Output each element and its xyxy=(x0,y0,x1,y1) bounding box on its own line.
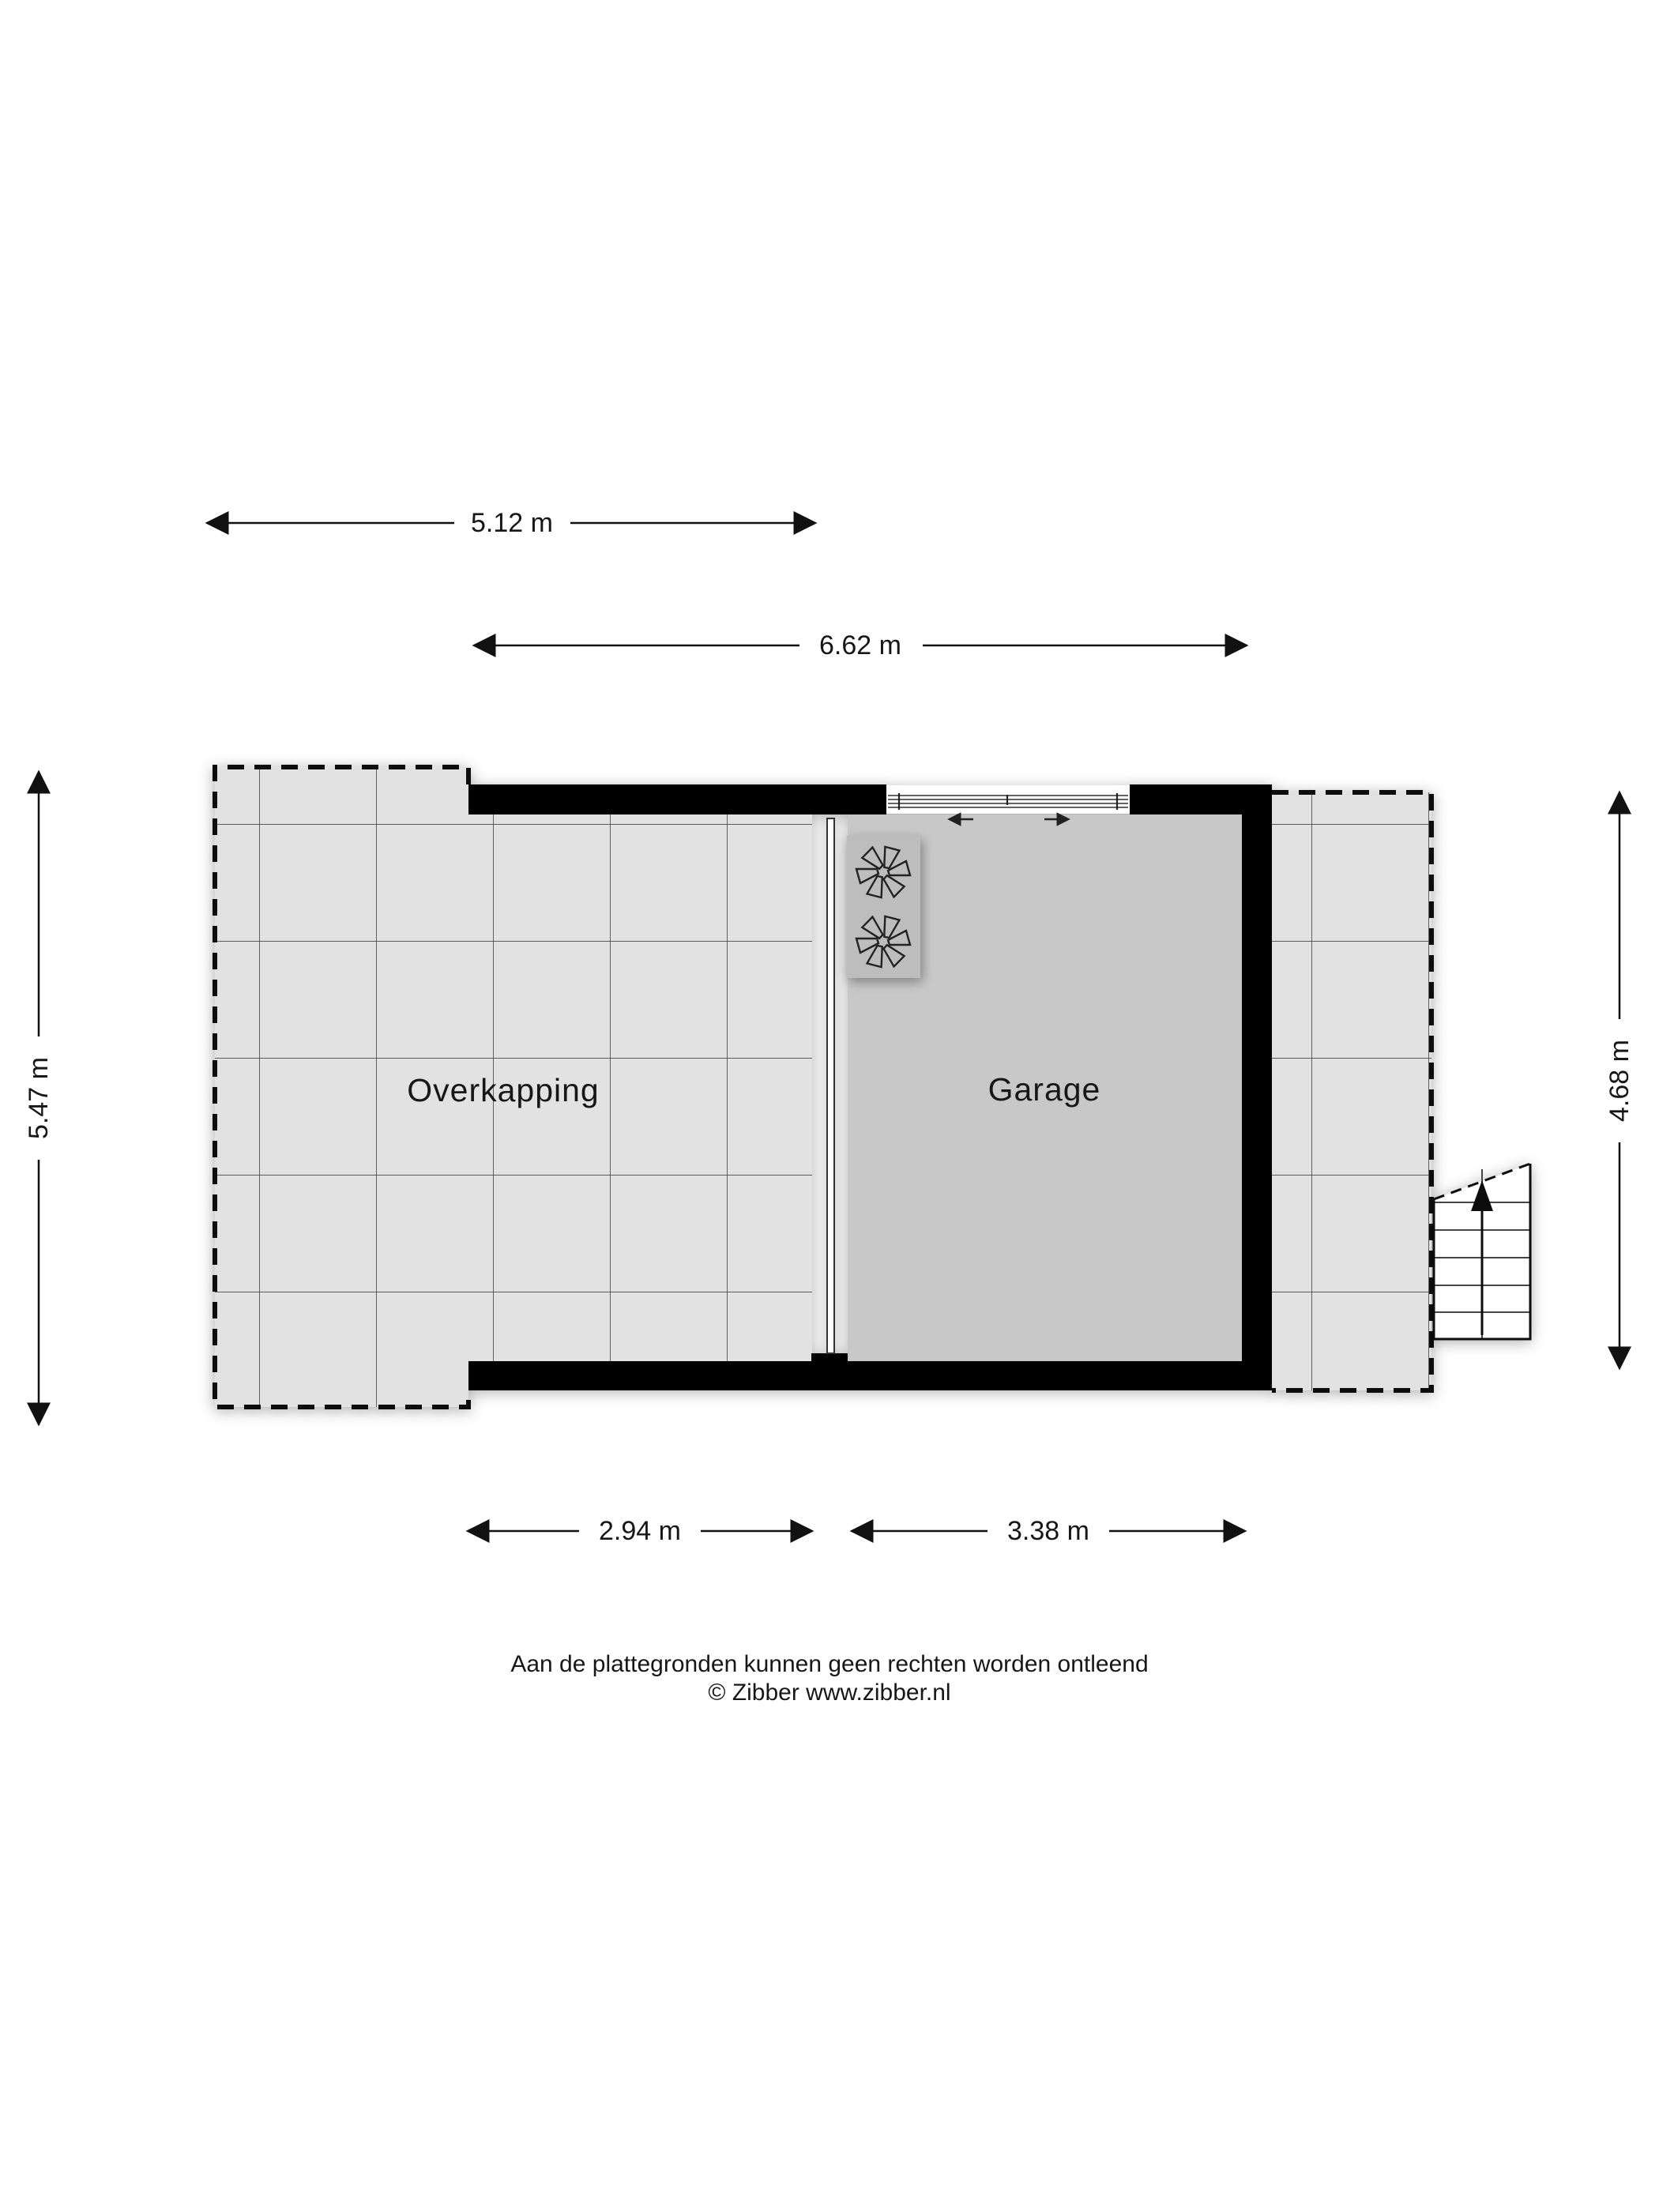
dimension-bottom-overkapping: 2.94 m xyxy=(468,1516,812,1546)
dimension-label: 4.68 m xyxy=(1604,1040,1635,1122)
dimension-right-garage: 4.68 m xyxy=(1604,792,1635,1368)
dimension-left-overkapping: 5.47 m xyxy=(24,772,54,1424)
dimension-top-overkapping: 5.12 m xyxy=(207,508,815,538)
room-label-garage: Garage xyxy=(988,1071,1101,1108)
stairs xyxy=(1434,1164,1530,1339)
dimension-bottom-garage: 3.38 m xyxy=(852,1516,1245,1546)
glass-partition xyxy=(827,818,834,1353)
wall-top-left xyxy=(468,784,886,814)
dimension-label: 3.38 m xyxy=(1007,1516,1089,1546)
dimension-label: 5.12 m xyxy=(471,508,553,538)
floorplan-page: 5.12 m 6.62 m 5.47 m 4.68 m 2.94 m 3.38 … xyxy=(0,0,1659,2212)
wall-right xyxy=(1242,784,1272,1390)
dimension-label: 6.62 m xyxy=(819,630,901,660)
fan-unit xyxy=(847,836,920,978)
fan-unit-box xyxy=(847,836,920,978)
dimension-top-total: 6.62 m xyxy=(474,630,1247,660)
wall-bottom-divider-step xyxy=(811,1353,848,1363)
room-label-overkapping: Overkapping xyxy=(407,1072,599,1108)
wall-bottom xyxy=(468,1361,1272,1390)
floorplan-svg: 5.12 m 6.62 m 5.47 m 4.68 m 2.94 m 3.38 … xyxy=(0,0,1659,2212)
dimension-label: 2.94 m xyxy=(599,1516,681,1546)
copyright-text: © Zibber www.zibber.nl xyxy=(708,1680,950,1706)
right-terrace-floor xyxy=(1272,792,1431,1390)
garage-door xyxy=(886,785,1130,819)
dimension-label: 5.47 m xyxy=(24,1057,54,1139)
disclaimer-text: Aan de plattegronden kunnen geen rechten… xyxy=(510,1651,1148,1677)
